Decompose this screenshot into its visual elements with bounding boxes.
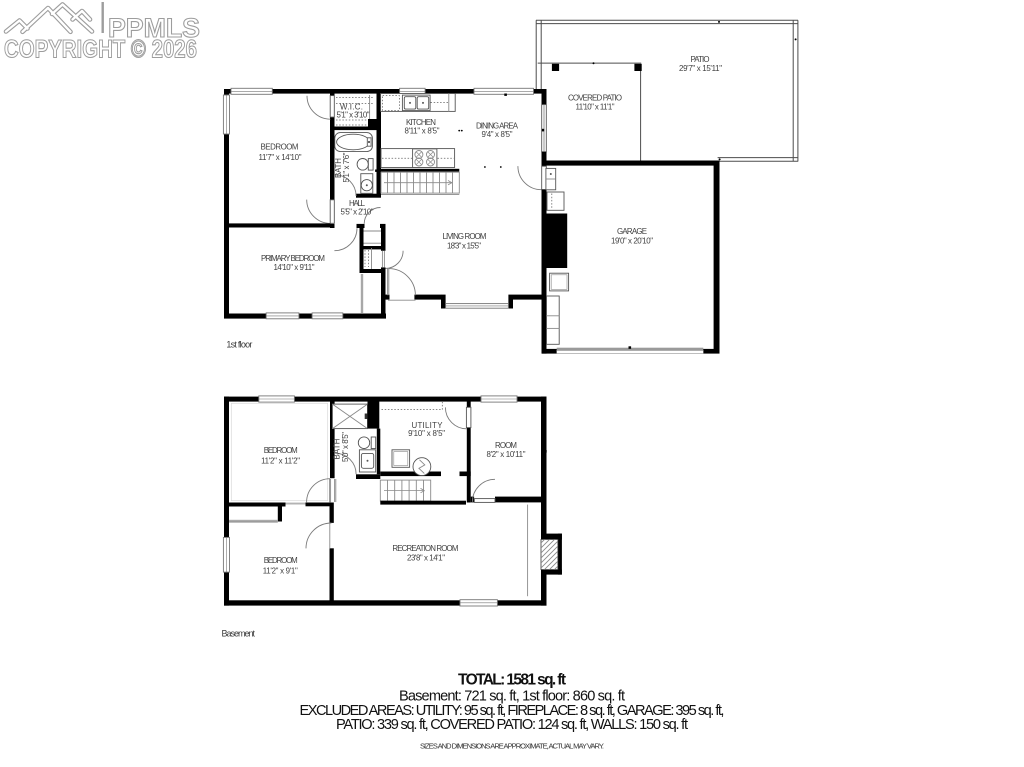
svg-text:BEDROOM: BEDROOM: [261, 142, 299, 151]
svg-text:GARAGE: GARAGE: [617, 227, 647, 236]
svg-text:29'7" x 15'11": 29'7" x 15'11": [679, 64, 722, 73]
svg-text:SIZES AND DIMENSIONS ARE APPRO: SIZES AND DIMENSIONS ARE APPROXIMATE, AC…: [420, 741, 604, 750]
svg-text:PATIO: 339 sq. ft, COVERED PAT: PATIO: 339 sq. ft, COVERED PATIO: 124 sq…: [336, 717, 688, 733]
svg-text:1st floor: 1st floor: [226, 340, 252, 350]
svg-text:11'7" x 14'10": 11'7" x 14'10": [259, 153, 302, 162]
svg-text:BEDROOM: BEDROOM: [264, 556, 298, 565]
svg-text:COPYRIGHT © 2026: COPYRIGHT © 2026: [4, 36, 197, 64]
svg-text:LIVING ROOM: LIVING ROOM: [443, 232, 487, 241]
svg-text:11'2" x 11'2": 11'2" x 11'2": [261, 456, 300, 465]
svg-text:5'1" x 7'6": 5'1" x 7'6": [342, 152, 351, 182]
svg-text:11'10" x 11'1": 11'10" x 11'1": [576, 102, 615, 111]
svg-text:KITCHEN: KITCHEN: [406, 118, 436, 127]
svg-text:19'0" x 20'10": 19'0" x 20'10": [611, 237, 653, 246]
svg-text:RECREATION ROOM: RECREATION ROOM: [392, 544, 458, 553]
svg-text:5'5" x 2'10": 5'5" x 2'10": [341, 208, 374, 217]
svg-text:COVERED PATIO: COVERED PATIO: [568, 94, 622, 103]
svg-text:DINING AREA: DINING AREA: [476, 121, 519, 130]
svg-text:ROOM: ROOM: [495, 441, 517, 450]
svg-text:14'10" x 9'11": 14'10" x 9'11": [274, 263, 315, 272]
svg-text:PATIO: PATIO: [691, 55, 710, 64]
svg-text:5'1" x 3'10": 5'1" x 3'10": [337, 111, 370, 120]
svg-text:Basement: Basement: [222, 628, 256, 638]
svg-text:8'2" x 10'11": 8'2" x 10'11": [487, 450, 526, 459]
svg-text:BEDROOM: BEDROOM: [264, 446, 298, 455]
svg-text:11'2" x 9'1": 11'2" x 9'1": [263, 566, 298, 575]
svg-text:9'4" x 8'5": 9'4" x 8'5": [482, 130, 513, 139]
svg-text:9'10" x 8'5": 9'10" x 8'5": [408, 429, 445, 438]
svg-text:18'3" x 15'5": 18'3" x 15'5": [447, 241, 481, 250]
svg-text:8'11" x 8'5": 8'11" x 8'5": [405, 127, 440, 136]
svg-text:5'0" x 8'5": 5'0" x 8'5": [341, 432, 350, 462]
svg-text:TOTAL: 1581 sq. ft: TOTAL: 1581 sq. ft: [458, 672, 566, 689]
svg-text:23'8" x 14'1": 23'8" x 14'1": [407, 554, 445, 563]
svg-text:PRIMARY BEDROOM: PRIMARY BEDROOM: [261, 254, 325, 263]
